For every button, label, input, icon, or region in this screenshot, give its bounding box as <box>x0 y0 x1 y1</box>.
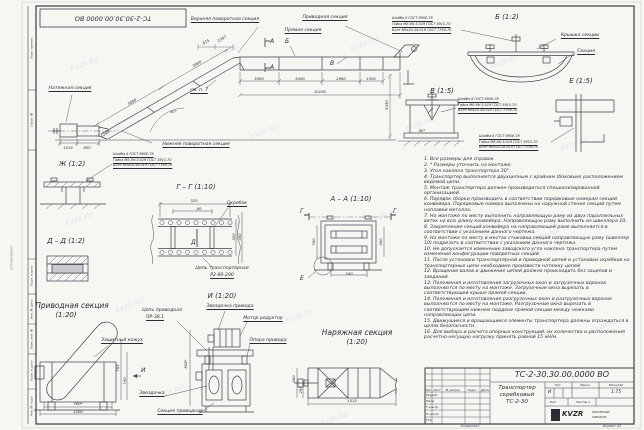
label-drive-section: Приводная секция <box>302 16 347 21</box>
drawing-sheet: KVZR.RU KVZR.RU KVZR.RU KVZR.RU KVZR.RU … <box>0 0 644 430</box>
titleblock-col-izm: Изм. <box>424 389 431 392</box>
company-logo-sub2: ЗАВОД РФ <box>592 416 606 419</box>
drive-section-scale: (1:20) <box>55 312 76 319</box>
label-drive-chain-model: ПР-38,1 <box>146 316 164 321</box>
copied-by-note: Копировал <box>461 425 480 428</box>
titleblock-role-tcontrol: Т.контр. <box>426 406 439 409</box>
label-section-cover: Крышка секции <box>561 34 599 39</box>
titleblock-sheet-label: Лист <box>549 401 557 404</box>
titleblock-role-checked: Пров. <box>426 400 435 403</box>
drive-dim-h3: 808* <box>184 359 188 368</box>
detail-dd-title: Д – Д (1:2) <box>47 238 85 245</box>
label-motor-reducer: Мотор редуктор <box>243 317 282 322</box>
detail-zh-linework <box>40 164 112 209</box>
note-item: 15. Движущиеся и вращающиеся элементы тр… <box>424 319 633 330</box>
note-item: 14. Положения и изготовления разгрузочны… <box>424 297 633 318</box>
drive-section-front-linework <box>165 311 254 413</box>
detail-gg-dim-h2: 460 <box>238 233 242 240</box>
fastener-bolt-note: Болт М8х25.58.019 ГОСТ 7798-70 <box>479 146 538 149</box>
titleblock-role-developed: Разраб. <box>426 394 438 397</box>
side-label-perv-primen: Перв. примен. <box>31 37 34 60</box>
note-item: 2. * Размеры уточнить на монтаже. <box>424 163 633 168</box>
label-conveyor-chain: Цепь транспортерная <box>195 267 248 272</box>
note-item: 8. Закрепление секций конвейера на напра… <box>424 225 633 236</box>
company-logo-sub1: КОТЕЛЬНЫЙ <box>592 411 609 414</box>
detail-zh-title: Ж (1:2) <box>59 161 86 168</box>
detail-mark-b: Б <box>285 39 289 45</box>
drive-dim-h2: 740 <box>123 377 127 384</box>
detail-v-title: В (1:5) <box>430 88 454 95</box>
titleblock-name-line3: ТС-2-30 <box>506 400 528 406</box>
fastener-bolt-note: Болт М8х25.58.019 ГОСТ 7798-70 <box>458 109 517 112</box>
note-item: 4. Транспортер выполняется двухцепным с … <box>424 175 633 186</box>
fastener-washer-note: Шайба 8 ГОСТ 6958-78 <box>479 135 520 138</box>
tension-section-title: Наряжная секция <box>322 329 392 337</box>
detail-aa-mark-g-right: Г <box>393 209 396 215</box>
section-mark-a-top: А <box>270 39 274 45</box>
titleblock-scale-header: Масштаб <box>609 384 623 387</box>
drive-section-side-linework <box>34 318 141 416</box>
detail-aa-dim-right: 360 <box>379 238 383 245</box>
view-i-title: И (1:20) <box>208 293 237 300</box>
titleblock-lit-value: И <box>548 391 551 396</box>
titleblock-col-sign: Подп. <box>467 389 476 392</box>
label-scraper: Скребок <box>227 202 247 207</box>
titleblock-sheets-label: Листов 1 <box>576 401 590 404</box>
label-tension-section: Натяжная секция <box>49 87 92 92</box>
company-logo-text: KVZR <box>562 411 583 418</box>
side-label-podp-data-2: Подп. и дата <box>31 361 34 381</box>
drive-section-title: Приводная секция <box>35 302 109 310</box>
detail-gg-dim-p: 80 <box>197 207 202 211</box>
dim-left2: 850 <box>83 146 90 150</box>
label-protective-casing: Защитный кожух <box>101 339 143 344</box>
note-item: 7. На монтаже по месту выполнить направл… <box>424 214 633 225</box>
dim-incline-angle: 30° <box>170 110 177 114</box>
detail-aa-dim-left: 700 <box>312 238 316 245</box>
dim-run1: 3000 <box>254 77 264 81</box>
side-label-sprav-no: Справ. № <box>31 113 34 128</box>
dim-run3: 2660 <box>336 77 346 81</box>
detail-dd-linework <box>47 256 88 281</box>
label-drive-sprocket: Звездочка привода <box>206 305 253 310</box>
detail-b-title: Б (1:2) <box>495 14 519 21</box>
detail-gg-dim-w: 320 <box>190 199 197 203</box>
label-lower-turn-section: Нижняя поворотная секция <box>162 143 229 148</box>
tension-section-linework <box>294 368 397 406</box>
dim-left1: 1515 <box>63 146 73 150</box>
corner-stamp-doc-number: ТС-2-30.30.00.0000 ВО <box>75 15 152 22</box>
titleblock-col-date: Дата <box>481 389 489 392</box>
label-upper-turn-section: Верхняя поворотная секция <box>191 18 259 23</box>
dim-run2: 3000 <box>295 77 305 81</box>
fastener-nut-note: Гайка М8-6Н.5.019 ГОСТ 5915-70 <box>113 159 172 162</box>
titleblock-mass-header: Масса <box>580 384 590 387</box>
titleblock-name-line1: Транспортер <box>498 386 535 392</box>
detail-b-linework <box>468 34 574 82</box>
tension-section-scale: (1:20) <box>346 339 367 346</box>
fastener-washer-note: Шайба 8 ГОСТ 6958-78 <box>458 98 499 101</box>
note-item: 16. Для выбора и расчета опорных констру… <box>424 330 633 341</box>
note-item: 6. Порядок сборки производить в соответс… <box>424 197 633 213</box>
notes-block: 1. Все размеры для справок. 2. * Размеры… <box>424 157 633 341</box>
note-item: 1. Все размеры для справок. <box>424 157 633 162</box>
view-mark-v: В <box>330 61 334 67</box>
note-item: 12. Вращение валов и движение цепей долж… <box>424 269 633 280</box>
detail-aa-mark-e: Е <box>300 276 304 282</box>
detail-gg-mark-d: Д <box>191 240 196 246</box>
drive-dim-w1: 780* <box>73 402 82 406</box>
titleblock-scale-value: 1:75 <box>611 391 621 396</box>
detail-gg-title: Г – Г (1:10) <box>176 184 215 191</box>
label-conveyor-chain-model: Р2-80-290 <box>210 274 234 279</box>
titleblock-col-doc: № докум. <box>446 389 461 392</box>
detail-gg-dim-h1: 320 <box>232 233 236 240</box>
label-drive-support: Опора привода <box>249 339 286 344</box>
margin-approved-note: Согласовано <box>10 246 14 270</box>
drive-dim-h1: 765 <box>116 364 120 371</box>
side-label-podp-data-1: Подп. и дата <box>31 266 34 286</box>
note-item: 13. Положения и изготовления загрузочных… <box>424 281 633 297</box>
note-item: 5. Монтаж транспортера должен производит… <box>424 186 633 197</box>
note-item: 3. Угол наклона транспортера 30°. <box>424 169 633 174</box>
dim-run4: 1500 <box>366 77 376 81</box>
titleblock-role-approved: Утв. <box>426 419 432 422</box>
dim-total-length: 10165 <box>314 90 326 94</box>
detail-aa-dim-bottom: 340 <box>345 272 352 276</box>
detail-aa-mark-g-left: Г <box>300 209 303 215</box>
note-item: 11. После установки транспортерной и при… <box>424 258 633 269</box>
drive-dim-w2: 1500 <box>73 410 83 414</box>
fastener-nut-note: Гайка М8-6Н.5.019 ГОСТ 5915-70 <box>392 23 451 26</box>
label-straight-section: Прямая секция <box>285 29 322 34</box>
titleblock-name-line2: скребковый <box>500 393 534 399</box>
note-item: 10. Не допускается изменение заводского … <box>424 247 633 258</box>
label-section: Секция <box>577 50 595 55</box>
detail-v-angle: 90° <box>419 129 426 133</box>
overview-linework <box>48 45 419 140</box>
dim-height: 5430 <box>385 100 389 110</box>
titleblock-doc-number: ТС-2-30.30.00.0000 ВО <box>515 371 609 379</box>
side-label-inv-podl: Инв. № подл. <box>31 396 34 417</box>
format-note: Формат А2 <box>603 425 622 428</box>
tension-dim-w: 1515 <box>347 399 357 403</box>
note-item: 9. На монтаже по месту в местах стыковки… <box>424 236 633 247</box>
fastener-bolt-note: Болт М8х25.58.019 ГОСТ 7798-70 <box>113 164 172 167</box>
fastener-washer-note: Шайба 8 ГОСТ 6958-78 <box>113 153 154 156</box>
tension-dim-h1: 560 <box>292 375 296 382</box>
view-i-mark: И <box>141 368 146 374</box>
tension-dim-h2: 295 <box>299 386 303 393</box>
label-sprocket: Звездочка <box>139 392 164 397</box>
detail-aa-title: А – А (1:10) <box>331 196 372 203</box>
fastener-nut-note: Гайка М8-6Н.5.019 ГОСТ 5915-70 <box>479 141 538 144</box>
label-see-note-7: см. п. 7 <box>190 89 208 94</box>
titleblock-col-list: Лист <box>433 389 441 392</box>
fastener-nut-note: Гайка М8-6Н.5.019 ГОСТ 5915-70 <box>458 104 517 107</box>
titleblock-role-ncontrol: Н.контр. <box>426 413 439 416</box>
detail-gg-linework <box>151 202 242 267</box>
titleblock-lit-header: Лит. <box>555 384 562 387</box>
label-drive-chain: Цепь приводная <box>142 309 182 314</box>
fastener-washer-note: Шайба 8 ГОСТ 6958-78 <box>392 17 433 20</box>
label-drive-section-part: Секция приводная <box>157 410 202 415</box>
side-label-inv-dubl: Инв. № дубл. <box>31 299 34 320</box>
fastener-bolt-note: Болт М8х25.58.019 ГОСТ 7798-70 <box>392 29 451 32</box>
side-label-vzam-inv: Взам. инв. № <box>31 329 34 349</box>
section-mark-a-bottom: А <box>270 65 274 71</box>
detail-e-title: Е (1:5) <box>569 78 592 85</box>
